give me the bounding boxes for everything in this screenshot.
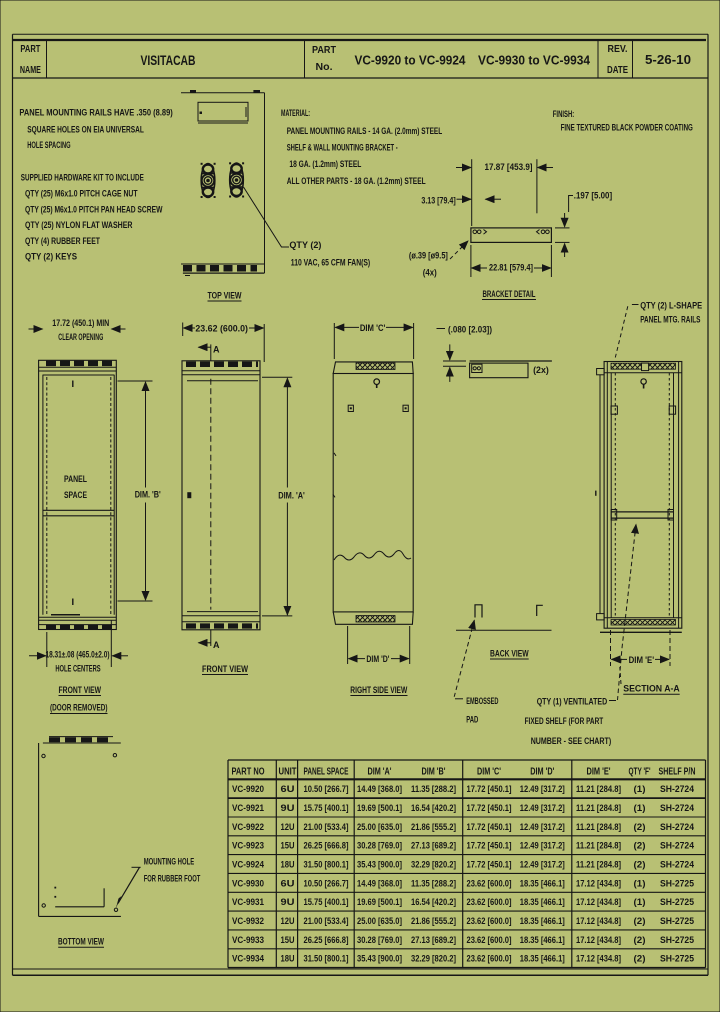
svg-text:VC-9933: VC-9933: [232, 935, 264, 945]
svg-text:14.49 [368.0]: 14.49 [368.0]: [357, 784, 402, 794]
svg-text:(2x): (2x): [533, 365, 549, 376]
svg-text:SH-2725: SH-2725: [660, 935, 694, 945]
svg-text:DIM 'E': DIM 'E': [629, 655, 655, 666]
svg-text:10.50 [266.7]: 10.50 [266.7]: [304, 878, 349, 888]
svg-text:17.72 [450.1]: 17.72 [450.1]: [467, 822, 512, 832]
svg-text:18U: 18U: [281, 859, 295, 869]
svg-text:PAD: PAD: [466, 715, 478, 726]
svg-text:32.29 [820.2]: 32.29 [820.2]: [411, 859, 456, 869]
svg-text:PANEL MTG. RAILS: PANEL MTG. RAILS: [640, 315, 700, 326]
svg-text:No.: No.: [316, 62, 333, 73]
svg-text:17.72 [450.1]: 17.72 [450.1]: [467, 803, 512, 813]
svg-text:6U: 6U: [281, 784, 295, 794]
svg-text:12.49 [317.2]: 12.49 [317.2]: [520, 822, 565, 832]
svg-text:NUMBER - SEE CHART): NUMBER - SEE CHART): [531, 736, 612, 747]
svg-text:18.35 [466.1]: 18.35 [466.1]: [520, 878, 565, 888]
svg-text:17.12 [434.8]: 17.12 [434.8]: [576, 916, 621, 926]
svg-text:HOLE CENTERS: HOLE CENTERS: [55, 664, 100, 675]
svg-text:21.86 [555.2]: 21.86 [555.2]: [411, 916, 456, 926]
svg-text:12U: 12U: [281, 916, 295, 926]
svg-text:SH-2725: SH-2725: [660, 878, 694, 888]
svg-text:QTY (2) L-SHAPE: QTY (2) L-SHAPE: [640, 301, 702, 312]
svg-text:BRACKET DETAIL: BRACKET DETAIL: [483, 289, 536, 300]
svg-text:QTY (2) KEYS: QTY (2) KEYS: [25, 252, 77, 263]
svg-text:NAME: NAME: [20, 65, 41, 76]
svg-text:VISITACAB: VISITACAB: [141, 52, 196, 68]
svg-text:14.49 [368.0]: 14.49 [368.0]: [357, 878, 402, 888]
svg-text:SQUARE HOLES ON EIA UNIVERSAL: SQUARE HOLES ON EIA UNIVERSAL: [27, 125, 144, 136]
svg-text:QTY 'F': QTY 'F': [629, 766, 651, 777]
svg-text:27.13 [689.2]: 27.13 [689.2]: [411, 841, 456, 851]
svg-text:FIXED SHELF (FOR PART: FIXED SHELF (FOR PART: [525, 716, 604, 727]
svg-text:BOTTOM VIEW: BOTTOM VIEW: [58, 937, 104, 948]
svg-text:DIM 'D': DIM 'D': [530, 766, 554, 777]
svg-text:(1): (1): [634, 784, 646, 794]
svg-text:VC-9920: VC-9920: [232, 784, 264, 794]
svg-text:PART: PART: [20, 44, 40, 55]
svg-text:(.080 [2.03]): (.080 [2.03]): [448, 325, 492, 336]
svg-text:SH-2724: SH-2724: [660, 841, 695, 851]
svg-text:16.54 [420.2]: 16.54 [420.2]: [411, 803, 456, 813]
svg-text:11.21 [284.8]: 11.21 [284.8]: [576, 859, 621, 869]
svg-text:QTY (25) NYLON FLAT WASHER: QTY (25) NYLON FLAT WASHER: [25, 220, 133, 231]
svg-text:SHELF P/N: SHELF P/N: [659, 766, 696, 777]
svg-text:DIM 'D': DIM 'D': [366, 654, 389, 665]
svg-text:PART NO: PART NO: [232, 766, 265, 777]
svg-text:DATE: DATE: [607, 65, 628, 76]
svg-text:18.35 [466.1]: 18.35 [466.1]: [520, 916, 565, 926]
svg-text:26.25 [666.8]: 26.25 [666.8]: [304, 841, 349, 851]
svg-text:PANEL MOUNTING RAILS - 14 GA.: PANEL MOUNTING RAILS - 14 GA. (2.0mm) ST…: [287, 126, 443, 137]
svg-text:(1): (1): [634, 878, 646, 888]
svg-text:HOLE SPACING: HOLE SPACING: [27, 140, 70, 151]
svg-text:VC-9931: VC-9931: [232, 897, 264, 907]
svg-text:A: A: [213, 640, 220, 650]
svg-text:SH-2725: SH-2725: [660, 916, 694, 926]
svg-text:SH-2725: SH-2725: [660, 897, 694, 907]
svg-text:EMBOSSED: EMBOSSED: [466, 696, 498, 707]
svg-text:SUPPLIED HARDWARE KIT TO INCLU: SUPPLIED HARDWARE KIT TO INCLUDE: [21, 173, 144, 184]
svg-text:17.12 [434.8]: 17.12 [434.8]: [576, 897, 621, 907]
svg-text:31.50 [800.1]: 31.50 [800.1]: [304, 954, 349, 964]
svg-text:FINE TEXTURED BLACK POWDER COA: FINE TEXTURED BLACK POWDER COATING: [561, 123, 693, 134]
svg-text:17.12 [434.8]: 17.12 [434.8]: [576, 878, 621, 888]
svg-text:(2): (2): [634, 841, 646, 851]
svg-text:DIM 'C': DIM 'C': [360, 323, 386, 334]
svg-text:23.62 (600.0): 23.62 (600.0): [195, 324, 248, 335]
svg-text:VC-9920 to VC-9924: VC-9920 to VC-9924: [355, 54, 466, 68]
svg-text:18.31±.08 (465.0±2.0): 18.31±.08 (465.0±2.0): [46, 650, 110, 661]
svg-text:TOP VIEW: TOP VIEW: [208, 291, 242, 302]
svg-text:(2): (2): [634, 935, 646, 945]
svg-text:SPACE: SPACE: [64, 490, 87, 501]
svg-text:12.49 [317.2]: 12.49 [317.2]: [520, 803, 565, 813]
svg-text:21.00 [533.4]: 21.00 [533.4]: [304, 916, 349, 926]
svg-text:25.00 [635.0]: 25.00 [635.0]: [357, 916, 402, 926]
svg-text:21.00 [533.4]: 21.00 [533.4]: [304, 822, 349, 832]
svg-text:18U: 18U: [281, 954, 295, 964]
svg-text:A: A: [213, 345, 220, 355]
svg-text:17.12 [434.8]: 17.12 [434.8]: [576, 935, 621, 945]
svg-text:DIM. 'A': DIM. 'A': [278, 491, 305, 502]
svg-text:RIGHT SIDE VIEW: RIGHT SIDE VIEW: [350, 685, 407, 696]
svg-text:12.49 [317.2]: 12.49 [317.2]: [520, 841, 565, 851]
svg-text:23.62 [600.0]: 23.62 [600.0]: [467, 878, 512, 888]
svg-text:MOUNTING HOLE: MOUNTING HOLE: [144, 857, 195, 868]
svg-text:CLEAR OPENING: CLEAR OPENING: [58, 332, 103, 343]
svg-text:15.75 [400.1]: 15.75 [400.1]: [304, 897, 349, 907]
svg-text:QTY (4) RUBBER FEET: QTY (4) RUBBER FEET: [25, 236, 100, 247]
svg-text:26.25 [666.8]: 26.25 [666.8]: [304, 935, 349, 945]
svg-text:30.28 [769.0]: 30.28 [769.0]: [357, 935, 402, 945]
svg-text:(2): (2): [634, 916, 646, 926]
svg-text:(DOOR REMOVED): (DOOR REMOVED): [50, 703, 108, 714]
svg-text:17.72 (450.1) MIN: 17.72 (450.1) MIN: [52, 318, 109, 329]
svg-text:UNIT: UNIT: [279, 766, 297, 777]
svg-text:110 VAC, 65 CFM FAN(S): 110 VAC, 65 CFM FAN(S): [291, 258, 370, 269]
svg-text:SECTION A-A: SECTION A-A: [623, 684, 680, 695]
svg-text:17.72 [450.1]: 17.72 [450.1]: [467, 841, 512, 851]
svg-text:32.29 [820.2]: 32.29 [820.2]: [411, 954, 456, 964]
svg-text:SH-2724: SH-2724: [660, 859, 695, 869]
svg-text:18 GA. (1.2mm) STEEL: 18 GA. (1.2mm) STEEL: [289, 159, 361, 170]
svg-text:(2): (2): [634, 822, 646, 832]
svg-text:DIM 'B': DIM 'B': [422, 766, 446, 777]
svg-text:VC-9932: VC-9932: [232, 916, 264, 926]
svg-text:23.62 [600.0]: 23.62 [600.0]: [467, 897, 512, 907]
svg-text:DIM 'E': DIM 'E': [587, 766, 611, 777]
svg-text:SH-2724: SH-2724: [660, 784, 695, 794]
svg-text:12U: 12U: [281, 822, 295, 832]
svg-text:FOR RUBBER FOOT: FOR RUBBER FOOT: [144, 874, 201, 885]
svg-text:VC-9923: VC-9923: [232, 841, 264, 851]
svg-text:11.21 [284.8]: 11.21 [284.8]: [576, 822, 621, 832]
svg-text:31.50 [800.1]: 31.50 [800.1]: [304, 859, 349, 869]
svg-text:VC-9924: VC-9924: [232, 859, 265, 869]
svg-text:MATERIAL:: MATERIAL:: [281, 108, 310, 119]
svg-text:15U: 15U: [281, 841, 295, 851]
svg-text:9U: 9U: [281, 803, 295, 813]
svg-text:16.54 [420.2]: 16.54 [420.2]: [411, 897, 456, 907]
svg-text:VC-9921: VC-9921: [232, 803, 264, 813]
svg-text:11.21 [284.8]: 11.21 [284.8]: [576, 803, 621, 813]
svg-text:DIM 'A': DIM 'A': [368, 766, 392, 777]
svg-text:17.87 [453.9]: 17.87 [453.9]: [485, 162, 533, 173]
svg-text:QTY (25) M6x1.0 PITCH PAN HEA: QTY (25) M6x1.0 PITCH PAN HEAD SCREW: [25, 205, 163, 216]
svg-text:DIM. 'B': DIM. 'B': [135, 490, 161, 501]
svg-text:27.13 [689.2]: 27.13 [689.2]: [411, 935, 456, 945]
svg-text:35.43 [900.0]: 35.43 [900.0]: [357, 859, 402, 869]
svg-text:30.28 [769.0]: 30.28 [769.0]: [357, 841, 402, 851]
svg-text:23.62 [600.0]: 23.62 [600.0]: [467, 935, 512, 945]
svg-text:QTY (25) M6x1.0 PITCH CAGE NU: QTY (25) M6x1.0 PITCH CAGE NUT: [25, 189, 138, 200]
svg-text:18.35 [466.1]: 18.35 [466.1]: [520, 954, 565, 964]
svg-text:PANEL SPACE: PANEL SPACE: [304, 766, 349, 777]
svg-text:(2): (2): [634, 954, 646, 964]
svg-text:11.35 [288.2]: 11.35 [288.2]: [411, 878, 456, 888]
svg-text:19.69 [500.1]: 19.69 [500.1]: [357, 803, 402, 813]
svg-text:23.62 [600.0]: 23.62 [600.0]: [467, 916, 512, 926]
svg-text:BACK VIEW: BACK VIEW: [490, 649, 529, 660]
svg-text:FRONT VIEW: FRONT VIEW: [59, 685, 102, 696]
svg-text:9U: 9U: [281, 897, 295, 907]
svg-text:18.35 [466.1]: 18.35 [466.1]: [520, 935, 565, 945]
svg-text:12.49 [317.2]: 12.49 [317.2]: [520, 784, 565, 794]
svg-text:(ø.39 [ø9.5]: (ø.39 [ø9.5]: [409, 250, 448, 261]
svg-text:FINISH:: FINISH:: [553, 109, 574, 120]
svg-text:PANEL: PANEL: [64, 474, 87, 485]
svg-text:ALL OTHER PARTS - 18 GA. (1.2m: ALL OTHER PARTS - 18 GA. (1.2mm) STEEL: [287, 176, 426, 187]
svg-text:.197 [5.00]: .197 [5.00]: [574, 191, 612, 202]
svg-text:QTY (1) VENTILATED: QTY (1) VENTILATED: [537, 697, 608, 708]
svg-text:21.86 [555.2]: 21.86 [555.2]: [411, 822, 456, 832]
svg-text:11.21 [284.8]: 11.21 [284.8]: [576, 841, 621, 851]
svg-text:VC-9934: VC-9934: [232, 954, 265, 964]
svg-text:17.72 [450.1]: 17.72 [450.1]: [467, 859, 512, 869]
svg-text:5-26-10: 5-26-10: [645, 52, 691, 67]
svg-text:SH-2724: SH-2724: [660, 822, 695, 832]
svg-text:QTY (2): QTY (2): [289, 240, 321, 251]
svg-text:18.35 [466.1]: 18.35 [466.1]: [520, 897, 565, 907]
svg-text:SH-2724: SH-2724: [660, 803, 695, 813]
svg-text:(4x): (4x): [423, 267, 437, 278]
svg-text:(2): (2): [634, 859, 646, 869]
svg-text:25.00 [635.0]: 25.00 [635.0]: [357, 822, 402, 832]
svg-text:19.69 [500.1]: 19.69 [500.1]: [357, 897, 402, 907]
svg-text:10.50 [266.7]: 10.50 [266.7]: [304, 784, 349, 794]
svg-text:PANEL MOUNTING RAILS HAVE .350: PANEL MOUNTING RAILS HAVE .350 (8.89): [19, 108, 172, 119]
svg-text:REV.: REV.: [608, 44, 628, 55]
svg-text:SHELF & WALL MOUNTING BRACKET: SHELF & WALL MOUNTING BRACKET -: [287, 143, 398, 154]
svg-text:VC-9922: VC-9922: [232, 822, 264, 832]
svg-text:PART: PART: [312, 45, 336, 56]
svg-text:15.75 [400.1]: 15.75 [400.1]: [304, 803, 349, 813]
svg-text:22.81 [579.4]: 22.81 [579.4]: [489, 263, 533, 274]
svg-text:12.49 [317.2]: 12.49 [317.2]: [520, 859, 565, 869]
svg-text:17.72 [450.1]: 17.72 [450.1]: [467, 784, 512, 794]
svg-text:17.12 [434.8]: 17.12 [434.8]: [576, 954, 621, 964]
svg-text:3.13 [79.4]: 3.13 [79.4]: [421, 196, 455, 207]
svg-text:VC-9930: VC-9930: [232, 878, 264, 888]
svg-text:23.62 [600.0]: 23.62 [600.0]: [467, 954, 512, 964]
svg-text:FRONT VIEW: FRONT VIEW: [202, 664, 248, 675]
svg-text:SH-2725: SH-2725: [660, 954, 694, 964]
svg-text:6U: 6U: [281, 878, 295, 888]
svg-text:35.43 [900.0]: 35.43 [900.0]: [357, 954, 402, 964]
svg-text:11.21 [284.8]: 11.21 [284.8]: [576, 784, 621, 794]
svg-text:(1): (1): [634, 897, 646, 907]
svg-text:VC-9930 to VC-9934: VC-9930 to VC-9934: [478, 54, 590, 68]
svg-text:11.35 [288.2]: 11.35 [288.2]: [411, 784, 456, 794]
svg-text:15U: 15U: [281, 935, 295, 945]
svg-text:(1): (1): [634, 803, 646, 813]
svg-text:DIM 'C': DIM 'C': [477, 766, 501, 777]
